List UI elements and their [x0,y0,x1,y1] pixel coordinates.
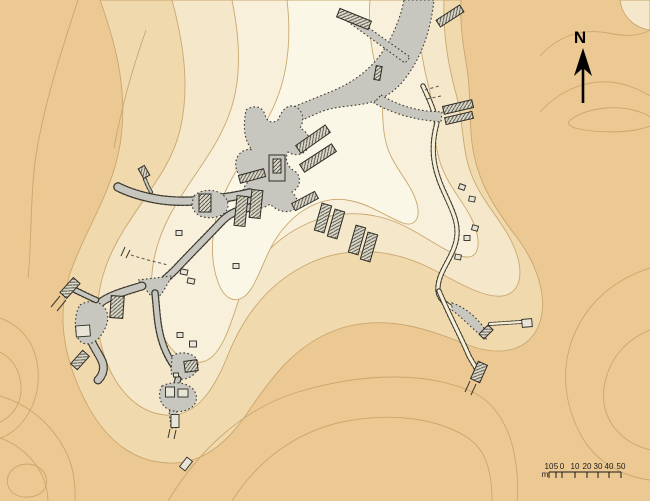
scale-tick-label: 40 [605,462,614,471]
scale-tick-label: 20 [583,462,592,471]
scale-tick-label: 5 [554,462,559,471]
scale-unit-label: m [542,470,549,479]
site-map-canvas: N m 10 5 0 10 20 30 40 50 [0,0,650,501]
scale-tick-label: 10 [571,462,580,471]
scale-tick-label: 50 [617,462,626,471]
wall-structure [110,296,125,319]
wall-structure [184,360,198,373]
building-structure [199,194,211,212]
scale-tick-label: 0 [560,462,565,471]
site-map: N m 10 5 0 10 20 30 40 50 [0,0,650,501]
terrain-bands [0,0,650,501]
scale-tick-label: 10 [545,462,554,471]
wall-structure [249,190,263,219]
building-structure [269,155,285,181]
scale-tick-label: 30 [594,462,603,471]
north-label: N [574,28,586,47]
